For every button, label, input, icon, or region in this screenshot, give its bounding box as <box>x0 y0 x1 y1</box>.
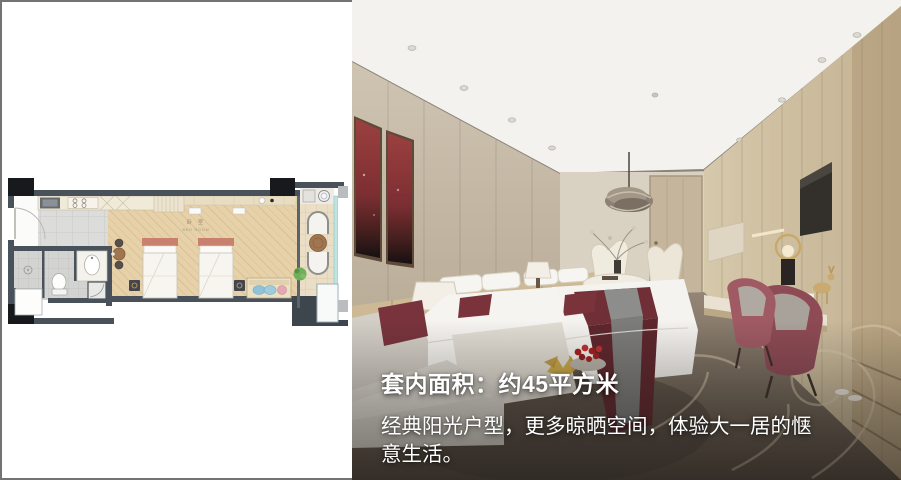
area-description: 经典阳光户型，更多晾晒空间，体验大一居的惬意生活。 <box>381 413 826 468</box>
entry-door-zone <box>14 196 38 250</box>
slide-canvas: 卧 室 BED ROOM <box>0 0 901 480</box>
room-photo-panel: 套内面积：约45平方米 经典阳光户型，更多晾晒空间，体验大一居的惬意生活。 <box>352 0 901 480</box>
bed-twin-left <box>142 238 178 298</box>
balcony-table <box>310 235 327 252</box>
area-title: 套内面积：约45平方米 <box>381 365 826 399</box>
plan-room-label-cn: 卧 室 <box>187 218 206 226</box>
sofa <box>247 278 291 298</box>
shower-stall <box>88 282 106 299</box>
plant <box>294 268 307 281</box>
plan-room-label-en: BED ROOM <box>182 228 209 232</box>
vanity-sink <box>77 251 107 281</box>
window-sills <box>338 186 348 312</box>
bay-window <box>15 289 42 315</box>
caption-block: 套内面积：约45平方米 经典阳光户型，更多晾晒空间，体验大一居的惬意生活。 <box>381 365 826 468</box>
kitchen-counter <box>38 196 184 212</box>
floor-plan-drawing: 卧 室 BED ROOM <box>8 168 348 332</box>
wardrobe <box>154 196 184 212</box>
floor-plan-panel: 卧 室 BED ROOM <box>8 168 348 332</box>
corner-window <box>317 284 338 322</box>
toilet <box>52 274 67 296</box>
bed-twin-right <box>198 238 234 298</box>
